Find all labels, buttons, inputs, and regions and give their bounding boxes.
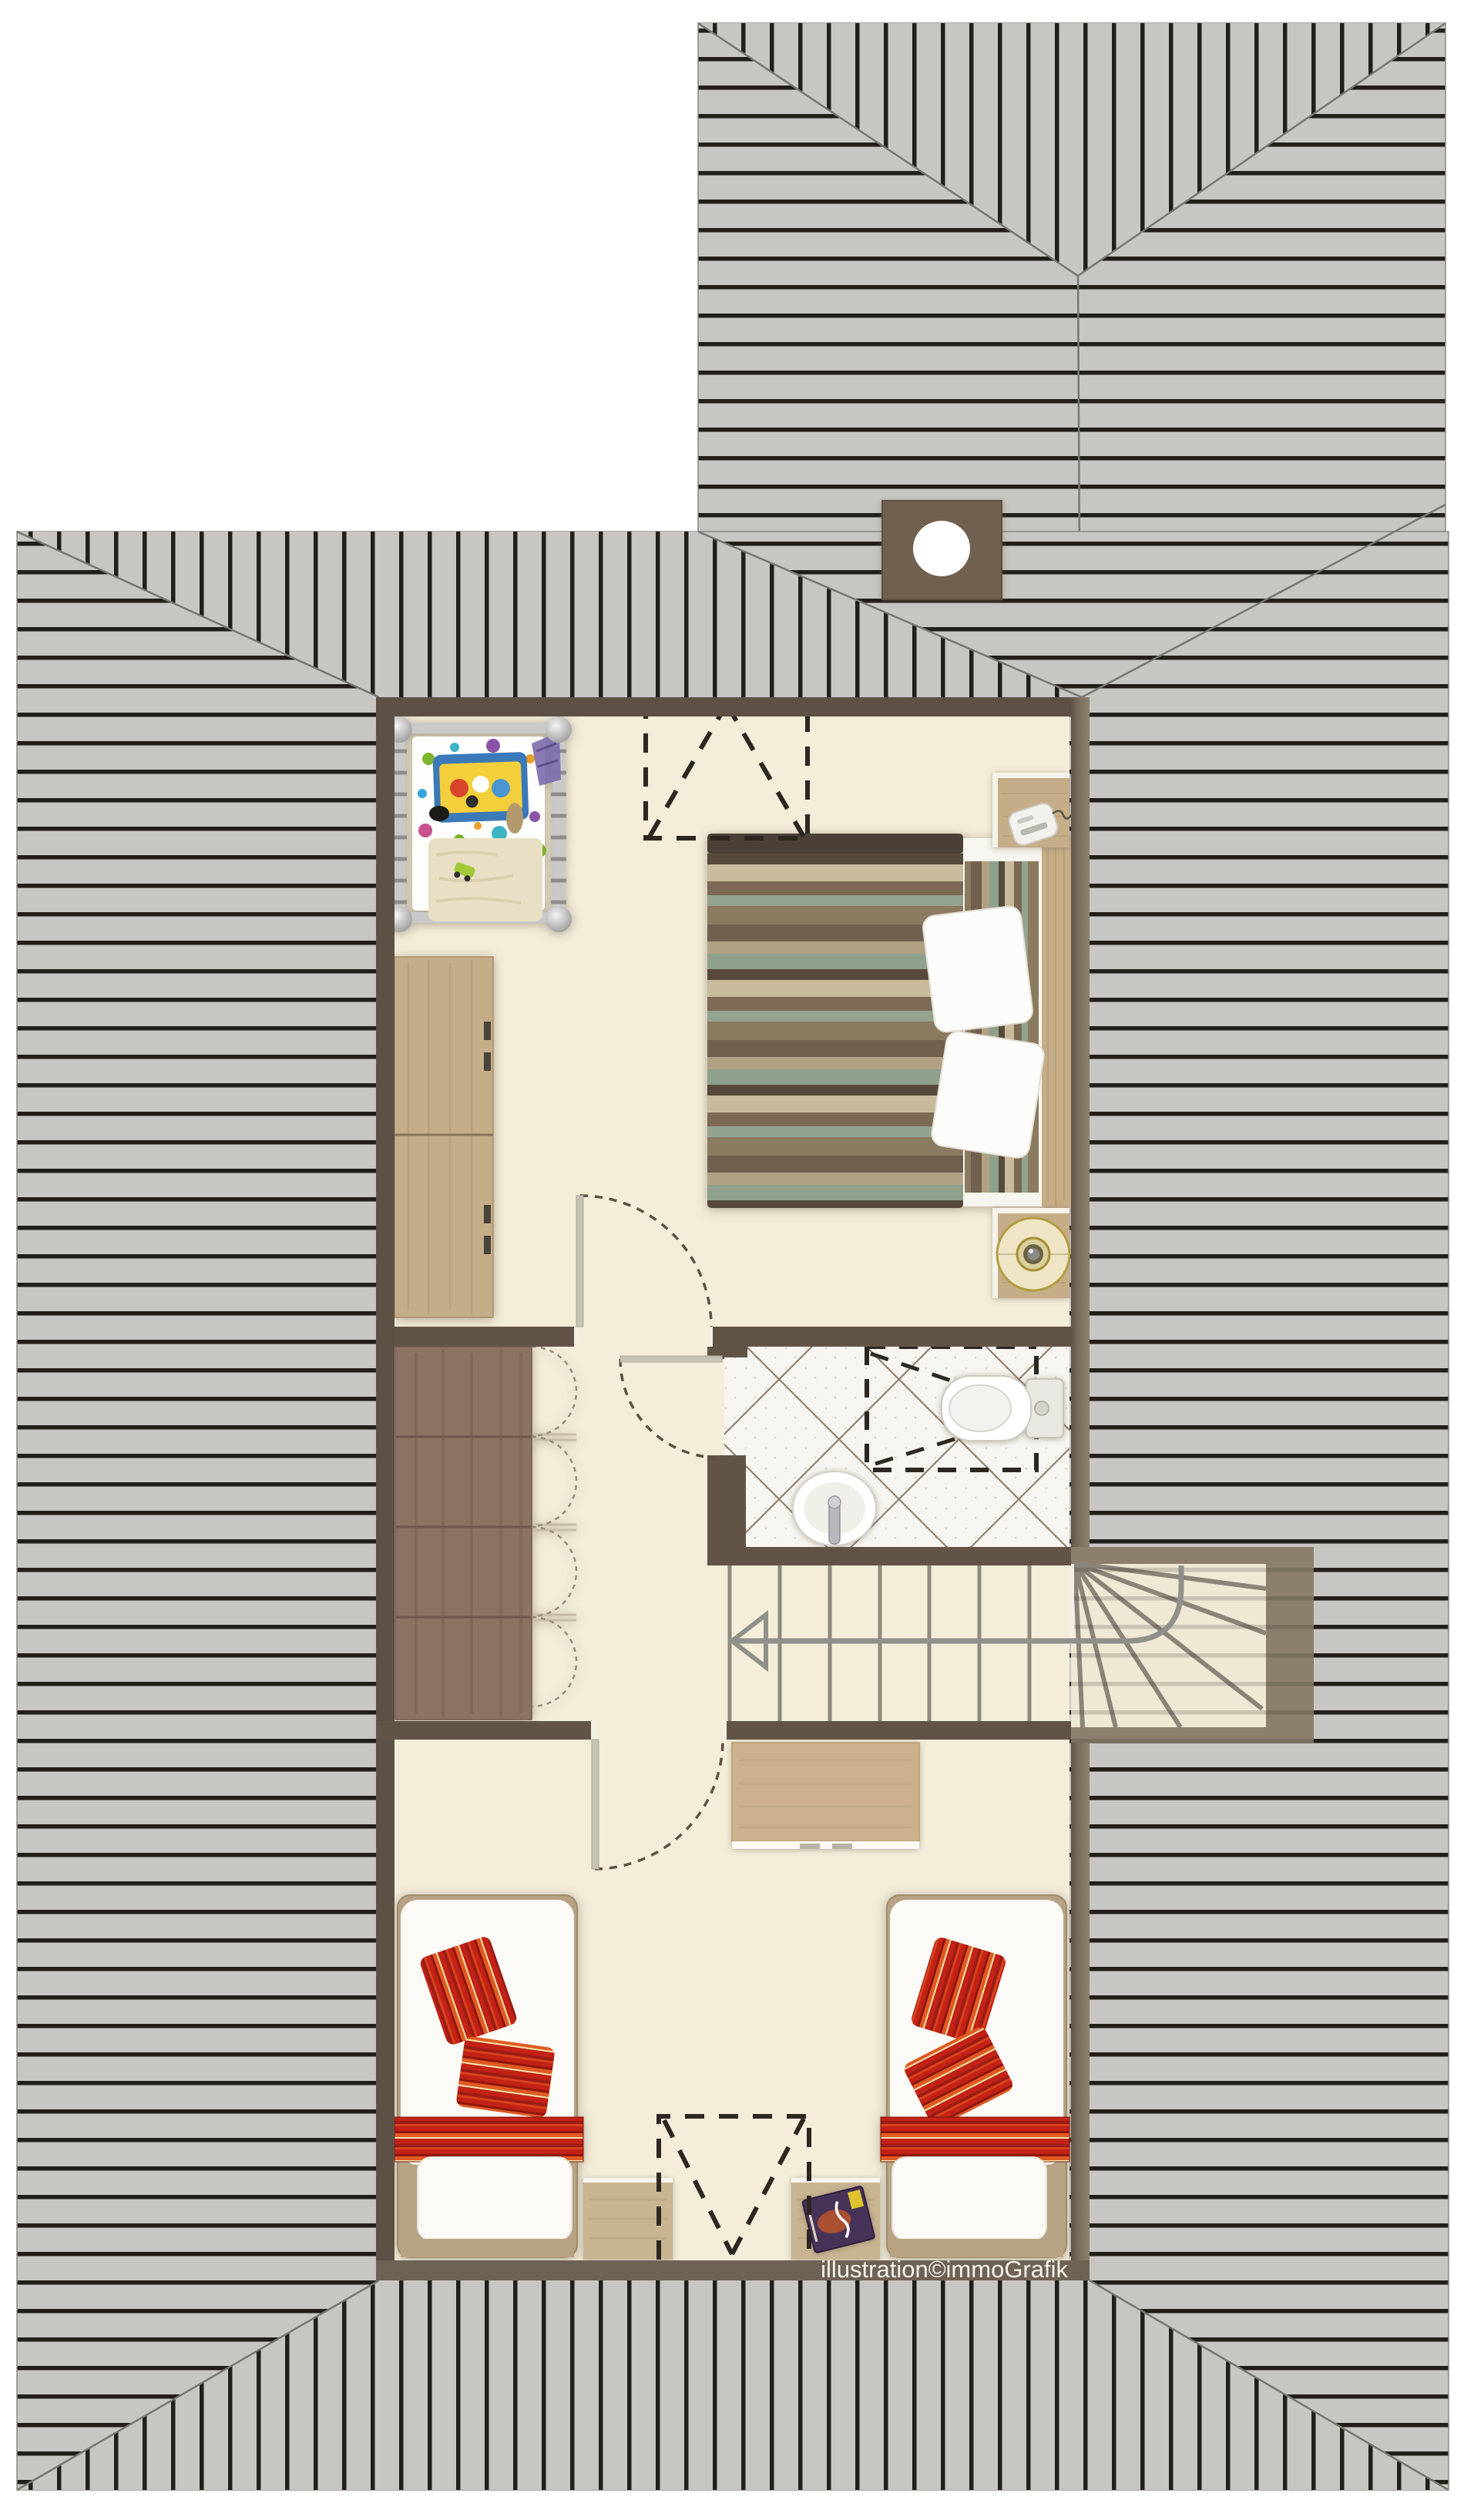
wall-stairs-bottom — [727, 1721, 1071, 1740]
floor-plan-canvas: illustration©immoGrafik — [0, 0, 1464, 2520]
floor-plan-page: illustration©immoGrafik — [0, 0, 1464, 2520]
wall-left — [376, 697, 395, 2280]
wall-right-lower — [1071, 1743, 1090, 2280]
desk — [732, 1743, 919, 1849]
wall-bedroom-left — [395, 1327, 578, 1347]
desk-handle — [832, 1844, 852, 1849]
door-leaf — [576, 1196, 583, 1327]
lamp-icon — [997, 1218, 1069, 1290]
watermark-text: illustration©immoGrafik — [821, 2256, 1068, 2283]
white-pillow — [892, 2157, 1046, 2240]
bathroom-tiles — [724, 1347, 1069, 1547]
wall-bedroom-right — [713, 1327, 1071, 1347]
door-leaf — [592, 1740, 599, 1869]
wardrobe-oak — [395, 957, 493, 1317]
crib-toy-dark — [429, 806, 449, 821]
red-pillow — [455, 2035, 556, 2119]
wall-top — [376, 697, 1090, 716]
stairwell-dormer — [1069, 1547, 1314, 1743]
bathroom — [724, 1347, 1069, 1547]
wall-right-upper — [1071, 697, 1090, 1547]
single-bed-right — [881, 1895, 1069, 2257]
white-pillow — [418, 2157, 572, 2240]
bed-pillow-2 — [930, 1030, 1046, 1159]
nightstand-with-lamp — [992, 1208, 1069, 1298]
double-bed — [707, 834, 1071, 1208]
red-runner — [881, 2117, 1069, 2162]
single-bed-left — [395, 1895, 583, 2257]
toilet-icon — [942, 1376, 1063, 1441]
wall-hall-bath-lower — [707, 1455, 746, 1547]
crib-toy-bear — [506, 803, 523, 834]
nightstand-with-phone — [992, 773, 1073, 847]
chimney-icon — [882, 501, 1002, 599]
bed-duvet — [707, 834, 963, 1208]
red-runner — [395, 2117, 583, 2162]
desk-handle — [800, 1844, 820, 1849]
sink-icon — [793, 1471, 876, 1545]
door-leaf — [620, 1356, 722, 1362]
bed-pillow-1 — [922, 905, 1034, 1033]
crib — [386, 716, 572, 932]
wall-bath-stairs — [707, 1547, 1071, 1565]
wall-lounge-left — [376, 1721, 595, 1740]
